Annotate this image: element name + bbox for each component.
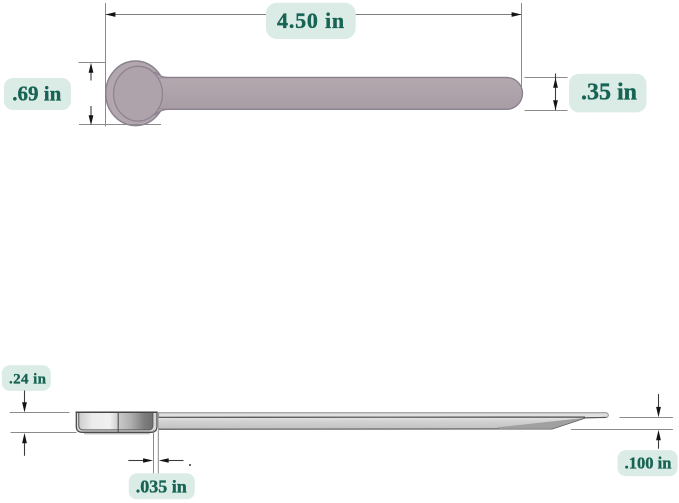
- svg-text:4.50 in: 4.50 in: [277, 8, 345, 33]
- svg-text:.035 in: .035 in: [136, 477, 187, 497]
- svg-text:.24 in: .24 in: [9, 371, 47, 387]
- svg-text:.100 in: .100 in: [625, 453, 672, 472]
- svg-text:.35 in: .35 in: [581, 80, 637, 106]
- svg-text:.69 in: .69 in: [12, 82, 61, 106]
